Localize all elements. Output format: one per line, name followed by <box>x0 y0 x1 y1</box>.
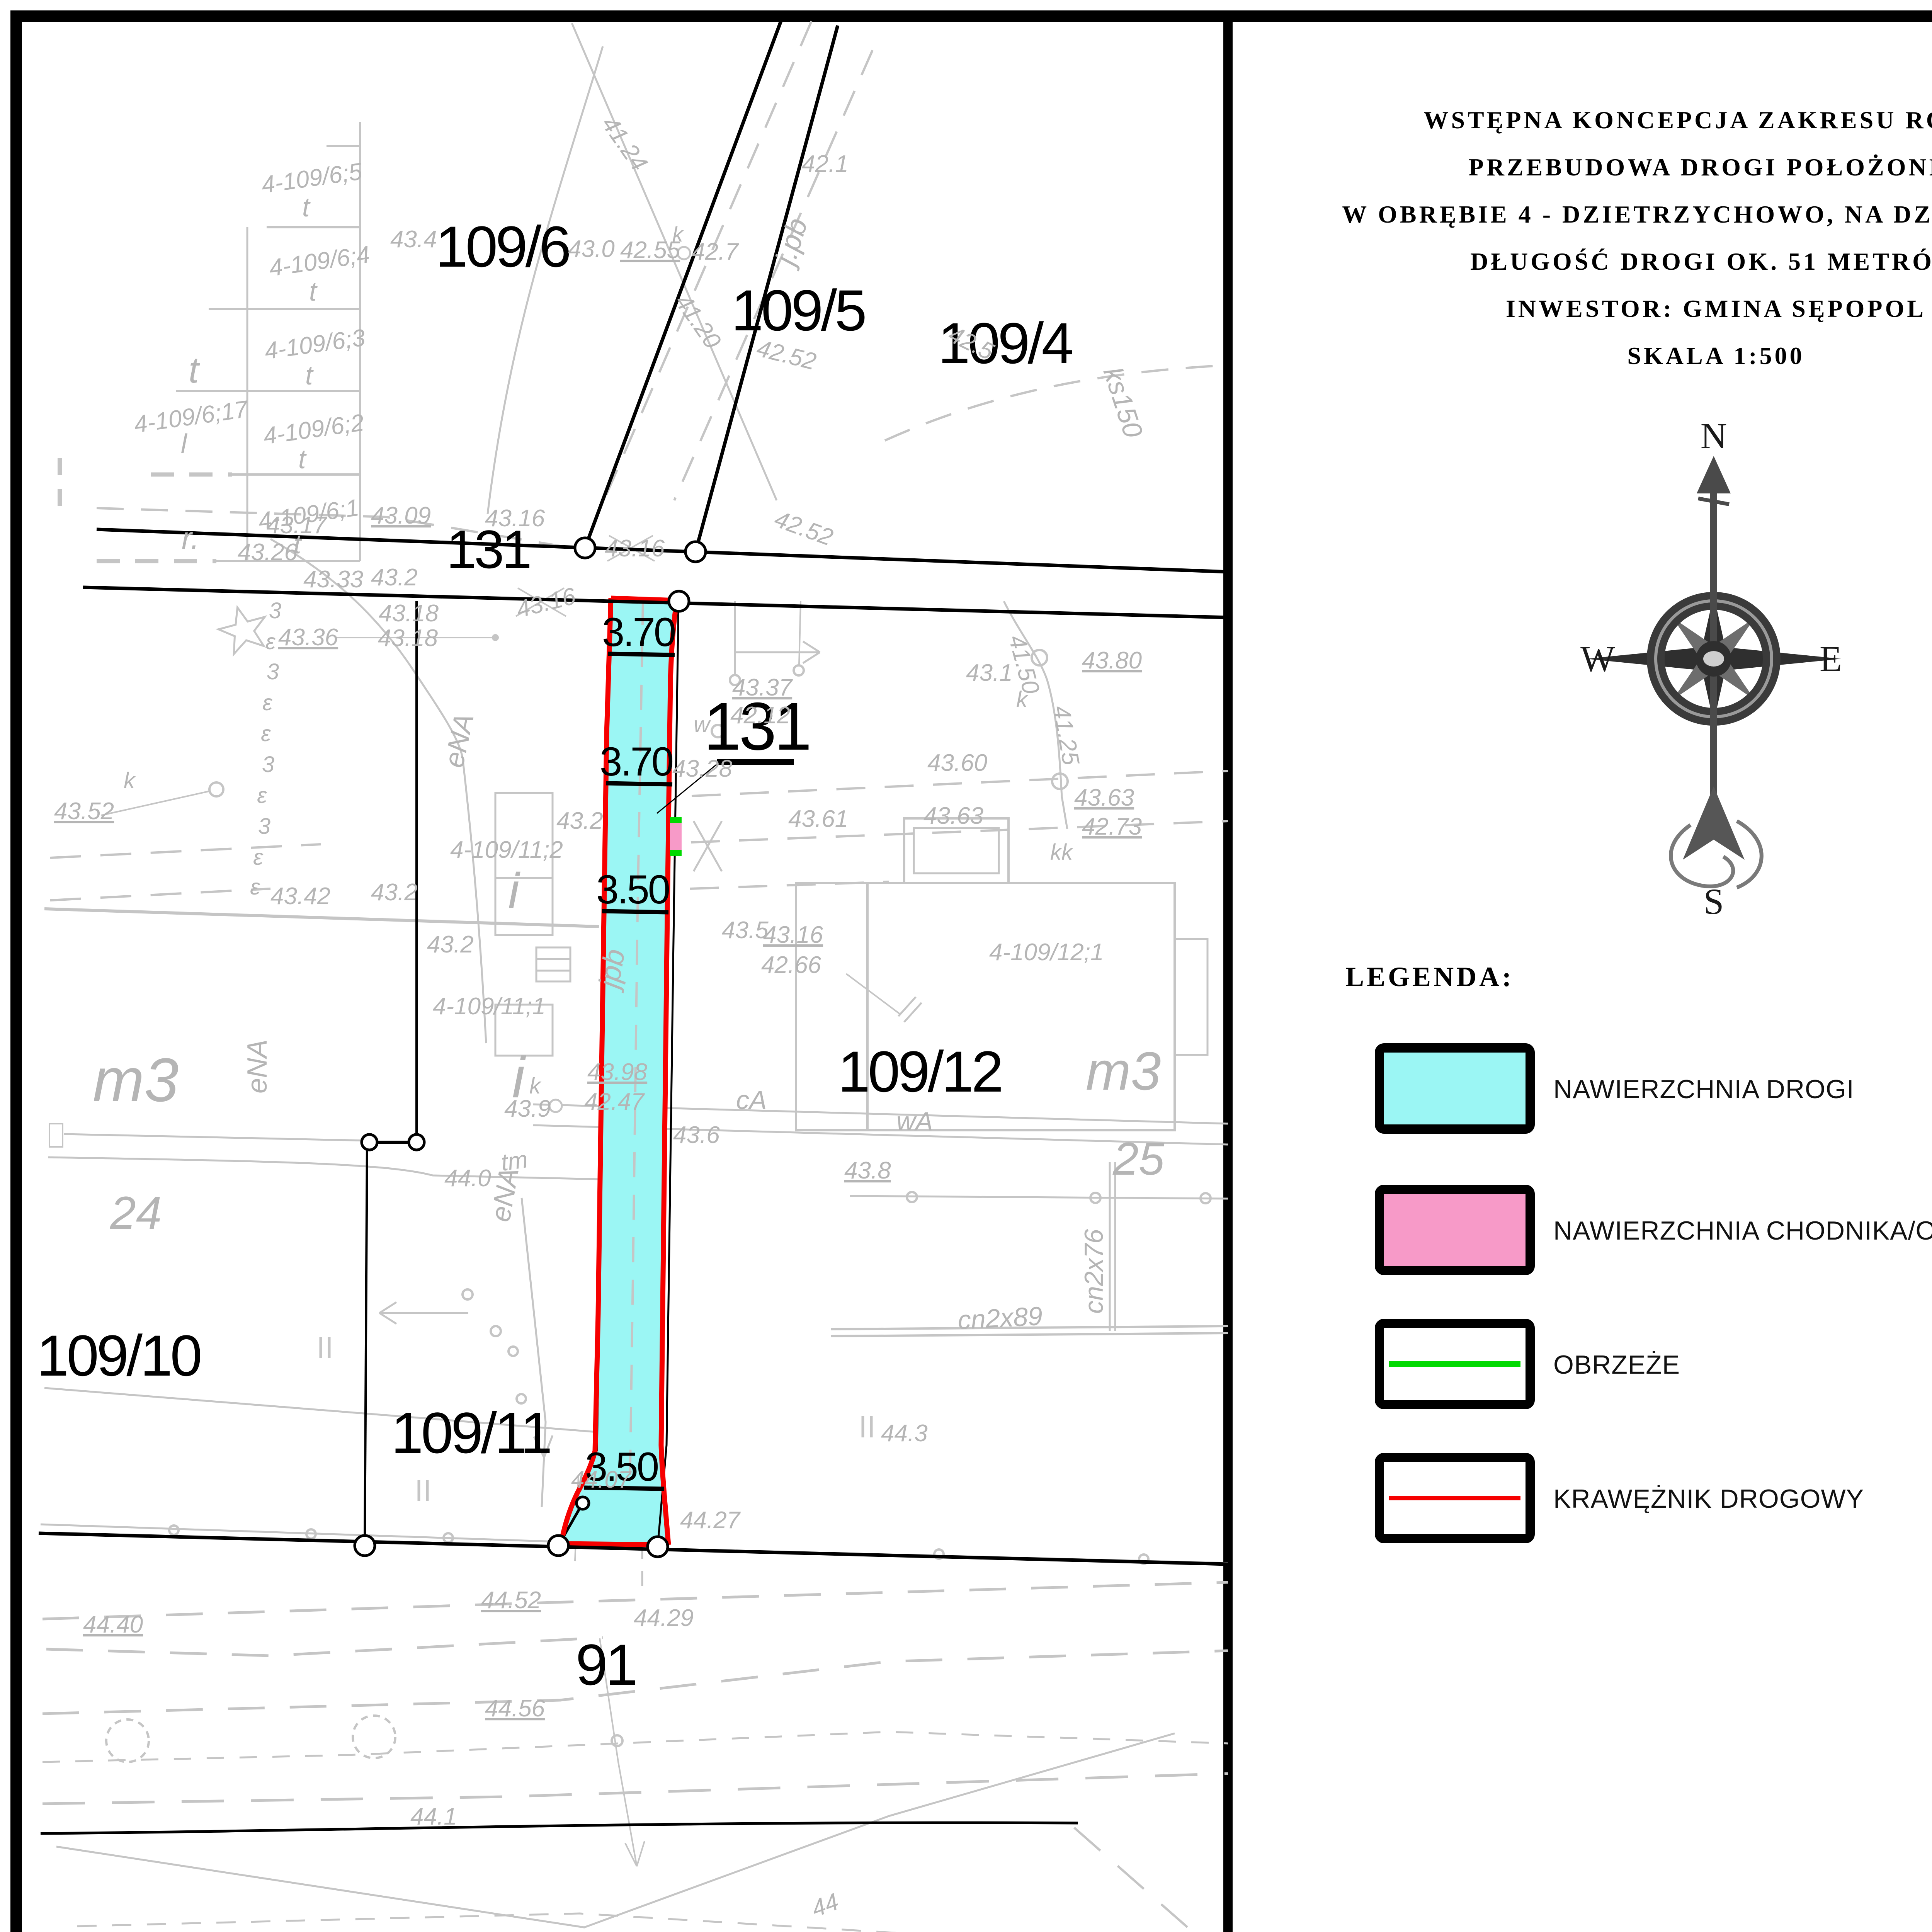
title-line-3: W OBRĘBIE 4 - DZIETRZYCHOWO, NA DZIAŁCE:… <box>1342 201 1932 228</box>
elevation-label: 42.47 <box>584 1088 645 1115</box>
utility-label-k: k <box>124 768 136 793</box>
elevation-label: 43.60 <box>927 750 987 776</box>
tree-symbol <box>106 1719 149 1762</box>
subparcel-label: 4-109/6;3 <box>263 324 367 365</box>
subparcel-label: 4-109/11;2 <box>450 837 563 863</box>
address-label-25: 25 <box>1112 1133 1165 1185</box>
legend-item-label: OBRZEŻE <box>1553 1350 1680 1379</box>
title-line-4: DŁUGOŚĆ DROGI OK. 51 METRÓW <box>1470 248 1932 275</box>
elevation-label: 44.07 <box>571 1466 632 1493</box>
elevation-label: 43.6 <box>673 1122 720 1148</box>
elevation-label: 42.7 <box>692 238 739 265</box>
elevation-label: 42.73 <box>1082 813 1142 840</box>
elevation-label: 43.33 <box>303 566 363 593</box>
elevation-label: 44.1 <box>410 1803 457 1830</box>
utility-label-cn2x89: cn2x89 <box>957 1301 1043 1335</box>
compass-east-label: E <box>1820 638 1842 679</box>
elevation-label: 41.24 <box>597 111 653 176</box>
elevation-label: 41.25 <box>1048 703 1084 767</box>
utility-label-tm: tm <box>499 1146 529 1176</box>
building-label-t: t <box>294 529 302 559</box>
parcel-label-109-12: 109/12 <box>838 1039 1002 1104</box>
parcel-label-109-5: 109/5 <box>731 278 865 343</box>
elevation-label: 44 <box>808 1888 842 1922</box>
elevation-label: 43.18 <box>379 600 439 627</box>
landuse-label-l: l <box>181 429 188 459</box>
map-symbol: ε <box>261 721 271 746</box>
elevation-label: 43.4 <box>390 226 437 253</box>
elevation-label: 42.55 <box>620 237 680 264</box>
building-label-r: r. <box>182 521 199 555</box>
landuse-label-m3: m3 <box>93 1045 179 1114</box>
elevation-label: 42.66 <box>761 952 821 978</box>
landuse-label-i: i <box>508 862 520 919</box>
elevation-label: 43.2 <box>427 931 474 958</box>
elevation-label: 43.16 <box>605 535 665 562</box>
elevation-label: 43.42 <box>270 883 330 910</box>
legend: LEGENDA: NAWIERZCHNIA DROGI NAWIERZCHNIA… <box>1345 961 1932 1539</box>
elevation-label: 44.3 <box>881 1420 928 1447</box>
landuse-label-m3: m3 <box>1086 1041 1161 1101</box>
dimension-label: 3.50 <box>596 867 669 912</box>
title-line-6: SKALA 1:500 <box>1627 342 1804 369</box>
elevation-label: 44.29 <box>634 1605 694 1631</box>
elevation-label: 43.16 <box>763 922 823 948</box>
legend-item-label: NAWIERZCHNIA CHODNIKA/OPASKI <box>1553 1216 1932 1245</box>
map-symbol: ε <box>262 690 273 715</box>
elevation-label: 43.09 <box>371 502 431 529</box>
building-label-t: t <box>302 192 311 222</box>
legend-swatch-road-surface <box>1379 1048 1530 1129</box>
map-symbol: ε <box>257 783 267 808</box>
elevation-label: 43.28 <box>672 755 733 782</box>
elevation-label: 43.98 <box>587 1059 648 1085</box>
elevation-label: 43.63 <box>1074 784 1134 811</box>
compass-south-label: S <box>1704 881 1724 922</box>
map-symbol: ε <box>265 629 276 654</box>
elevation-label: 43.61 <box>788 806 848 832</box>
elevation-label: 43.36 <box>278 624 338 651</box>
plan-drawing: 109/6 109/5 109/4 131 131 109/12 109/10 … <box>0 0 1932 1932</box>
elevation-label: 43.2 <box>556 808 603 834</box>
elevation-label: 43.16 <box>514 583 579 623</box>
subparcel-label: 4-109/6;2 <box>262 409 366 450</box>
edging-segment <box>670 850 682 856</box>
elevation-label: 43.37 <box>732 674 793 701</box>
title-block: WSTĘPNA KONCEPCJA ZAKRESU ROBÓT PRZEBUDO… <box>1342 106 1932 369</box>
dimension-label: 3.70 <box>602 610 675 655</box>
elevation-label: 43.63 <box>923 803 983 829</box>
map-symbol: 3 <box>267 659 279 684</box>
compass-west-label: W <box>1580 638 1615 679</box>
parcel-label-109-10: 109/10 <box>37 1323 200 1388</box>
utility-label-ca: cA <box>736 1085 767 1115</box>
compass-north-label: N <box>1701 415 1727 456</box>
map-symbol: 3 <box>262 752 274 777</box>
building-label-t: t <box>298 444 307 474</box>
elevation-label: 43.2 <box>371 879 418 906</box>
elevation-label: 43.18 <box>378 625 438 651</box>
elevation-label: 43.2 <box>371 564 418 591</box>
elevation-label: 42.12 <box>730 702 790 729</box>
elevation-label: 43.16 <box>485 505 545 532</box>
compass-rose-icon: N S W E <box>1580 415 1842 922</box>
elevation-label: 43.26 <box>238 539 298 566</box>
elevation-label: 43.80 <box>1082 647 1142 674</box>
landuse-label-i: i <box>512 1045 526 1110</box>
elevation-label: 41.20 <box>670 289 726 354</box>
elevation-label: 43.52 <box>54 798 114 825</box>
elevation-label: 42.1 <box>802 151 849 177</box>
edging-segment <box>670 817 682 823</box>
elevation-label: 43.5 <box>722 917 769 944</box>
map-symbol: 3 <box>269 598 281 623</box>
subparcel-label: 4-109/12;1 <box>989 939 1104 966</box>
parcel-label-91: 91 <box>576 1632 636 1697</box>
utility-label-w: w <box>694 712 711 737</box>
subparcel-label: 4-109/6;5 <box>260 158 364 199</box>
parcel-label-109-6: 109/6 <box>435 214 569 279</box>
address-label-24: 24 <box>110 1187 162 1239</box>
utility-label-ks150: ks150 <box>1098 364 1149 442</box>
utility-label-wa: wA <box>896 1107 933 1136</box>
sidewalk-patch <box>670 823 682 850</box>
title-line-5: INWESTOR: GMINA SĘPOPOL <box>1506 295 1926 322</box>
elevation-label: 43.8 <box>844 1157 891 1184</box>
elevation-label: 42.52 <box>771 505 836 551</box>
plan-sheet: 109/6 109/5 109/4 131 131 109/12 109/10 … <box>0 0 1932 1932</box>
utility-label-k: k <box>672 222 684 246</box>
elevation-label: 43.1 <box>966 660 1013 686</box>
subparcel-label: 4-109/6;17 <box>132 396 250 438</box>
elevation-label: 44.27 <box>680 1507 741 1534</box>
building-label-t: t <box>189 350 200 391</box>
dimension-label: 3.70 <box>600 739 673 784</box>
elevation-label: 44.0 <box>444 1165 491 1192</box>
parcel-label-109-11: 109/11 <box>391 1400 550 1465</box>
subparcel-label: 4-109/6;4 <box>267 241 371 282</box>
title-line-2: PRZEBUDOWA DROGI POŁOŻONEJ <box>1469 153 1932 181</box>
legend-item-label: KRAWĘŻNIK DROGOWY <box>1553 1484 1864 1514</box>
building-label-t: t <box>305 360 314 390</box>
title-line-1: WSTĘPNA KONCEPCJA ZAKRESU ROBÓT <box>1423 106 1932 134</box>
utility-label-cn2x76: cn2x76 <box>1079 1229 1109 1314</box>
building-label-t: t <box>309 276 318 306</box>
legend-item-label: NAWIERZCHNIA DROGI <box>1553 1075 1854 1104</box>
elevation-label: 44.40 <box>83 1611 143 1638</box>
map-symbol: ε <box>253 845 264 870</box>
utility-label-k: k <box>529 1073 542 1099</box>
subparcel-label: 4-109/11;1 <box>433 993 546 1020</box>
utility-label-ena: eNA <box>242 1039 273 1094</box>
elevation-label: 43.0 <box>568 236 615 262</box>
elevation-label: 43.9 <box>504 1095 551 1122</box>
map-symbol: 3 <box>258 814 270 839</box>
tree-symbol <box>353 1716 395 1758</box>
elevation-label: 44.52 <box>481 1587 541 1614</box>
utility-label-kk: kk <box>1050 840 1074 865</box>
elevation-label: 44.56 <box>485 1695 545 1722</box>
star-icon <box>214 601 272 656</box>
utility-label-k: k <box>1016 687 1029 712</box>
legend-swatch-sidewalk-surface <box>1379 1189 1530 1270</box>
legend-heading: LEGENDA: <box>1345 961 1514 992</box>
map-symbol: ε <box>250 874 260 900</box>
